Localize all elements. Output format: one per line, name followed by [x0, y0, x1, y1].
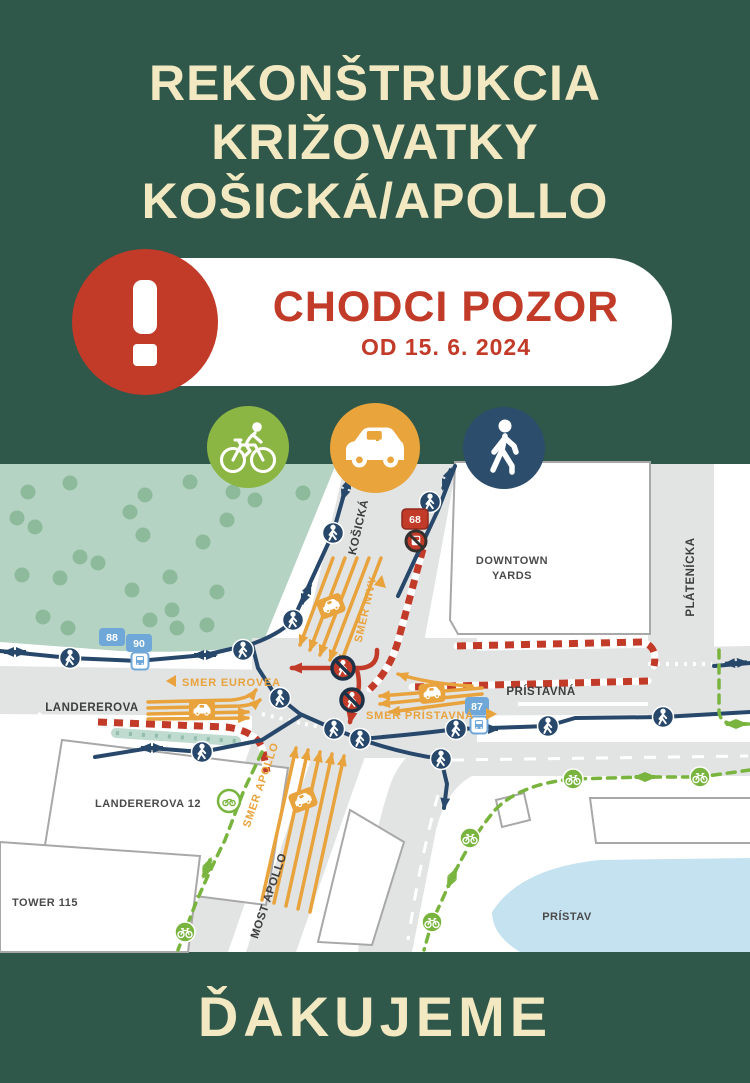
- bus-line-90-badge: 90: [126, 634, 152, 652]
- street-label-platenicka: PLÁTENÍCKA: [684, 537, 697, 616]
- poster: REKONŠTRUKCIA KRIŽOVATKY KOŠICKÁ/APOLLO …: [0, 0, 750, 1083]
- place-label-downtown-yards-2: YARDS: [492, 570, 532, 582]
- direction-label-smer-pristavna: SMER PRÍSTAVNÁ: [366, 709, 474, 722]
- pedestrian-node: [324, 719, 345, 740]
- road-landererova: [0, 666, 280, 716]
- cyclist-node: [175, 922, 195, 942]
- building-east: [590, 798, 750, 843]
- cyclist-node: [460, 828, 480, 848]
- car-icon: [189, 700, 215, 720]
- car-icon: [418, 682, 446, 705]
- pedestrian-node: [653, 707, 674, 728]
- svg-text:68: 68: [409, 514, 421, 526]
- pedestrian-node: [350, 729, 371, 750]
- place-label-downtown-yards-1: DOWNTOWN: [476, 555, 548, 567]
- pedestrian-node: [323, 523, 344, 544]
- bike-share-icon: [218, 790, 240, 812]
- car-icon: [330, 403, 420, 493]
- cyclist-node: [422, 912, 442, 932]
- pedestrian-icon: [463, 407, 545, 489]
- cyclist-icon: [207, 406, 289, 488]
- pedestrian-node: [283, 610, 304, 631]
- cyclist-node: [563, 769, 583, 789]
- no-pedestrian-sign-icon: [332, 657, 354, 679]
- pedestrian-node: [233, 640, 254, 661]
- svg-text:90: 90: [133, 638, 145, 650]
- street-label-landererova: LANDEREROVA: [45, 702, 138, 714]
- pedestrian-node: [192, 742, 213, 763]
- pedestrian-node: [60, 648, 81, 669]
- no-pedestrian-sign-icon: [341, 689, 363, 711]
- bus-stop-icon: [132, 653, 149, 670]
- pedestrian-node: [538, 716, 559, 737]
- pedestrian-node: [270, 688, 291, 709]
- place-label-landererova12: LANDEREROVA 12: [95, 798, 201, 810]
- building-small: [496, 793, 530, 827]
- place-label-pristav: PRÍSTAV: [542, 910, 592, 923]
- svg-text:88: 88: [106, 632, 118, 644]
- bus-line-88-badge: 88: [99, 628, 125, 646]
- place-label-tower115: TOWER 115: [12, 897, 78, 909]
- street-label-pristavna: PRÍSTAVNÁ: [506, 685, 575, 698]
- direction-label-smer-eurovea: SMER EUROVEA: [182, 677, 281, 689]
- bus-line-68-badge: 68: [402, 509, 428, 529]
- no-bus-sign-icon: [406, 531, 426, 551]
- cyclist-node: [690, 767, 710, 787]
- intersection-map: 88 90 87 68 KOŠICKÁ PLÁTENÍCKA: [0, 0, 750, 1083]
- pedestrian-node: [431, 749, 452, 770]
